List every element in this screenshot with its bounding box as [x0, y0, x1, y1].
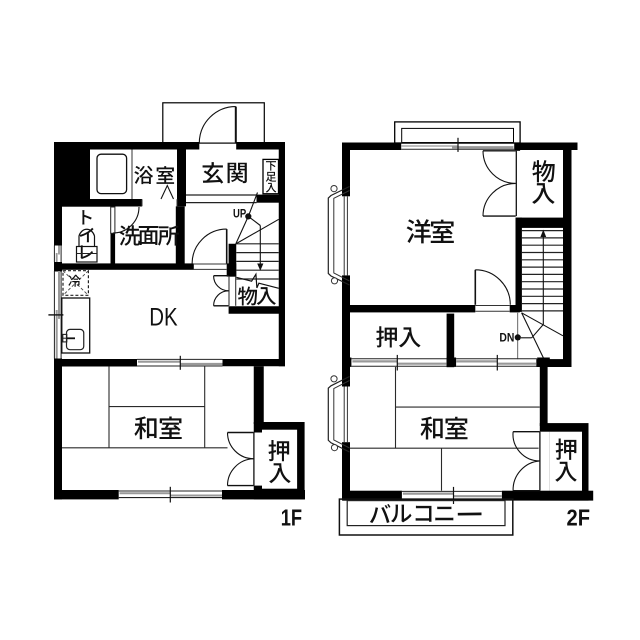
- svg-text:DN: DN: [499, 333, 514, 345]
- svg-text:2F: 2F: [567, 504, 591, 530]
- svg-text:DK: DK: [149, 303, 178, 331]
- svg-text:UP: UP: [233, 207, 246, 221]
- svg-text:1F: 1F: [281, 504, 302, 530]
